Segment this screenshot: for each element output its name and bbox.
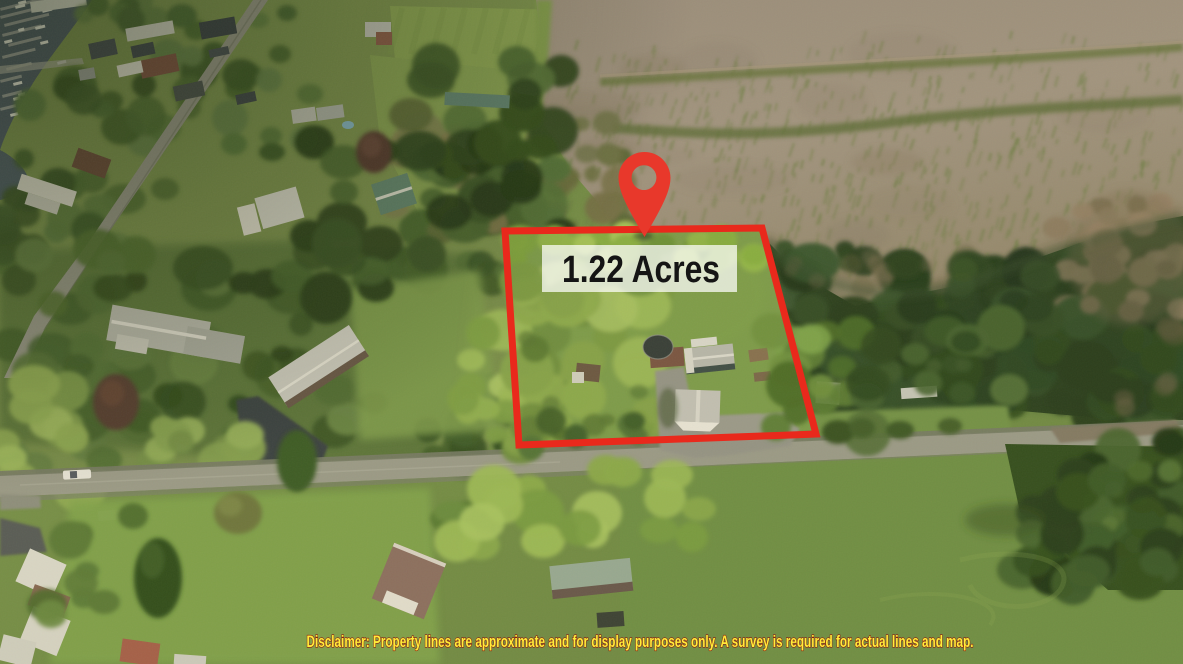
svg-text:1.22 Acres: 1.22 Acres: [562, 249, 720, 291]
svg-text:Disclaimer: Property lines are: Disclaimer: Property lines are approxima…: [307, 632, 974, 651]
